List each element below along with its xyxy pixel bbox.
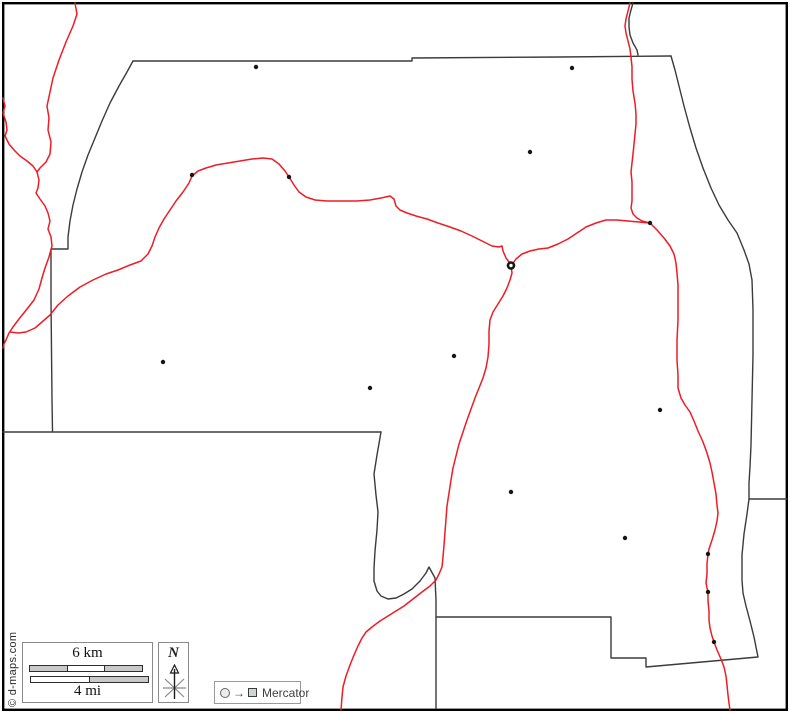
map-background [0, 0, 790, 713]
scale-bar-segment [67, 666, 105, 671]
scale-bar-segment [104, 666, 142, 671]
city-dot [706, 590, 710, 594]
square-marker-icon [248, 688, 257, 697]
city-dot [658, 408, 662, 412]
city-dot [190, 173, 194, 177]
map-svg [0, 0, 790, 713]
scale-bar: 6 km 4 mi [22, 642, 153, 703]
map-canvas: 6 km 4 mi N → Mercator © d-maps.com [0, 0, 790, 713]
ring-town-marker [508, 263, 514, 269]
scale-bar-segment [30, 666, 67, 671]
city-dot [712, 640, 716, 644]
projection-label: Mercator [260, 686, 309, 700]
city-dot [254, 65, 258, 69]
city-dot [706, 552, 710, 556]
scale-mi-label: 4 mi [23, 683, 152, 700]
city-dot [287, 175, 291, 179]
scale-km-label: 6 km [23, 645, 152, 662]
city-dot [648, 221, 652, 225]
scale-bar-segment [31, 677, 89, 682]
scale-bar-segment [89, 677, 148, 682]
north-arrow-icon [159, 664, 190, 702]
city-dot [452, 354, 456, 358]
circle-marker-icon [220, 688, 230, 698]
city-dot [623, 536, 627, 540]
city-dot [161, 360, 165, 364]
city-dot [528, 150, 532, 154]
right-arrow-icon: → [233, 687, 245, 699]
city-dot [509, 490, 513, 494]
projection-legend: → Mercator [214, 681, 301, 704]
scale-km-bar [29, 665, 143, 672]
copyright-watermark: © d-maps.com [7, 632, 19, 707]
city-dot [570, 66, 574, 70]
north-indicator: N [158, 642, 189, 703]
scale-mi-bar [30, 676, 149, 683]
north-label: N [159, 645, 188, 662]
city-dot [368, 386, 372, 390]
